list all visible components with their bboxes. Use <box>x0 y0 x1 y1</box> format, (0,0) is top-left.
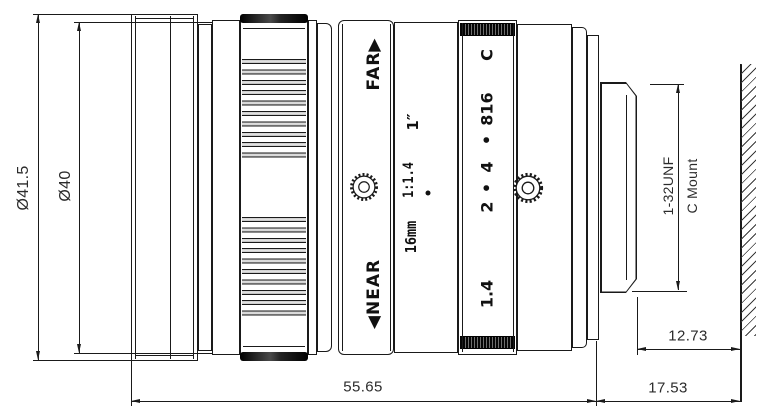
front-barrel-rear-inner-line <box>193 16 194 359</box>
spacer-ring <box>212 20 240 355</box>
aperture-knurl-top-band <box>460 23 515 36</box>
dim-line-thread-length <box>637 349 740 350</box>
diameter-40-ring <box>198 24 212 351</box>
focal-length-label: 16mm <box>402 221 420 254</box>
front-diameter-label: Ø41.5 <box>15 165 33 210</box>
knurl-ribs-lower <box>242 217 306 321</box>
front-barrel-top-inner-line <box>136 18 194 19</box>
dim-line-rear-length <box>596 401 740 402</box>
arrowhead-left <box>131 399 140 403</box>
sensor-format-label: 1″ <box>404 113 422 130</box>
knurl-bottom-cap <box>240 352 308 361</box>
aperture-mark-2: 2 <box>478 201 497 212</box>
aperture-ring-left-inner-line <box>462 23 463 352</box>
aperture-index-dot <box>426 191 431 196</box>
aperture-mark-4: 4 <box>478 161 497 172</box>
front-rim-inner-line <box>135 16 136 359</box>
thread-spec-label: 1-32UNF <box>660 157 676 216</box>
far-arrow-icon: ▶ <box>364 38 384 52</box>
arrowhead-up <box>36 14 40 23</box>
rear-length-label: 17.53 <box>648 380 688 397</box>
near-arrow-icon: ◀ <box>364 315 384 329</box>
focus-lock-thumbscrew-icon[interactable] <box>349 172 379 202</box>
arrowhead-right <box>587 399 596 403</box>
dim-line-front-diameter <box>38 14 39 360</box>
knurl-top-cap <box>240 14 308 23</box>
body-length-label: 55.65 <box>343 379 383 396</box>
arrowhead-down <box>676 281 680 290</box>
arrowhead-right <box>731 399 740 403</box>
aperture-ratio-label: 1:1.4 <box>401 162 417 198</box>
arrowhead-down <box>36 351 40 360</box>
ext-line-barrel-diameter-top <box>74 22 212 23</box>
lens-dimensional-drawing: FAR▶ ◀NEAR 1″ 1:1.4 16mm C 816 • 4 • 2 1… <box>0 0 757 418</box>
rear-cap-ring <box>572 27 587 348</box>
focus-ring-left-inner-line <box>342 24 343 351</box>
aperture-mark-8-16: 816 <box>478 92 497 125</box>
wall-section-hatching-icon <box>741 64 756 336</box>
ext-line-barrel-rear <box>596 341 597 406</box>
aperture-mark-1-4: 1.4 <box>478 280 497 308</box>
thread-length-label: 12.73 <box>668 328 708 345</box>
dim-line-thread-diameter <box>678 84 679 290</box>
ext-line-front-diameter-bottom <box>33 360 131 361</box>
focus-ring-right-inner-line <box>390 24 391 351</box>
ext-line-barrel-diameter-bottom <box>74 353 212 354</box>
dim-line-body-length <box>131 401 596 402</box>
dim-line-barrel-diameter <box>79 22 80 353</box>
arrowhead-left <box>596 399 605 403</box>
focus-near-label: ◀NEAR <box>364 259 384 329</box>
knurl-upper-trim-line <box>243 28 305 29</box>
knurl-ribs-upper <box>242 59 306 163</box>
focus-far-label: FAR▶ <box>364 38 384 91</box>
front-barrel-joint-line <box>170 16 171 359</box>
trim-ring <box>308 20 317 355</box>
arrowhead-up <box>676 84 680 93</box>
arrowhead-down <box>77 344 81 353</box>
flange-chamfer-line <box>626 95 627 280</box>
arrowhead-right <box>731 347 740 351</box>
ext-line-thread-bottom <box>632 291 687 292</box>
ext-line-front-diameter-top <box>33 14 131 15</box>
knurled-grip-ring[interactable] <box>240 14 308 361</box>
taper-ring <box>317 23 332 352</box>
flange-face <box>602 84 636 292</box>
near-text: NEAR <box>364 259 384 315</box>
aperture-lock-thumbscrew-icon[interactable] <box>512 172 544 204</box>
mount-neck-ring <box>587 35 599 340</box>
arrowhead-up <box>77 22 81 31</box>
aperture-dot-icon: • <box>478 135 497 145</box>
barrel-diameter-label: Ø40 <box>57 170 75 201</box>
aperture-mark-c: C <box>478 49 497 61</box>
arrowhead-left <box>637 347 646 351</box>
aperture-dot-icon: • <box>478 183 497 193</box>
front-barrel-bottom-inner-line <box>136 355 194 356</box>
c-mount-thread-flange <box>600 82 637 293</box>
mount-type-label: C Mount <box>684 158 700 213</box>
front-barrel <box>131 14 198 361</box>
knurl-lower-trim-line <box>243 346 305 347</box>
aperture-knurl-bottom-band <box>460 336 515 349</box>
far-text: FAR <box>364 52 384 91</box>
